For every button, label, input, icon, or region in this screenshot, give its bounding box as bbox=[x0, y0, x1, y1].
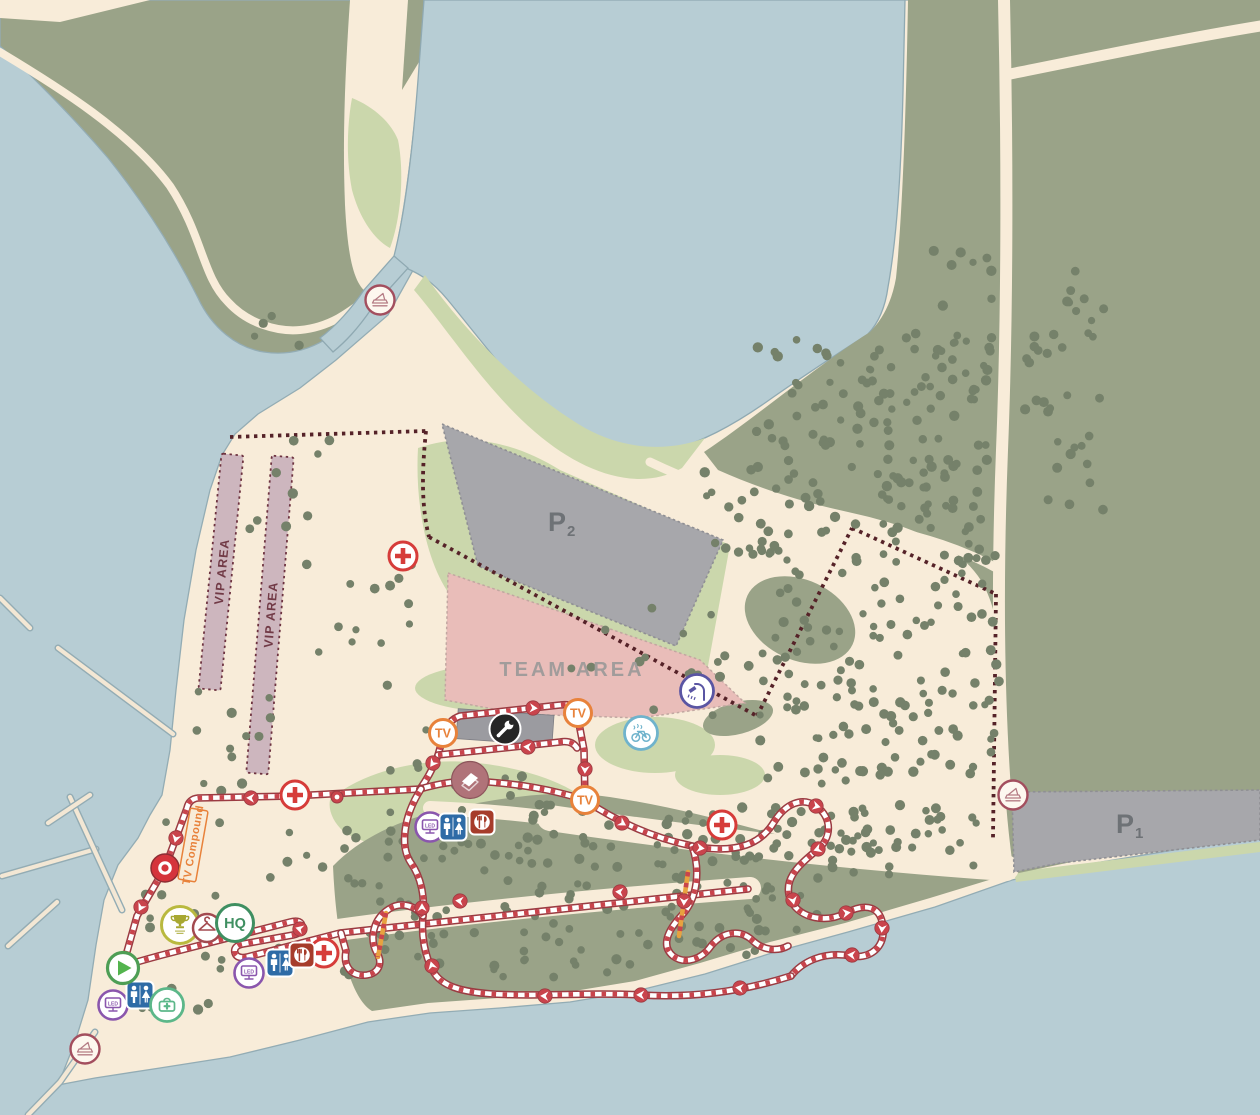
ferry-dock-icon bbox=[71, 1035, 100, 1064]
ferry-road-icon bbox=[999, 781, 1028, 810]
svg-text:LED: LED bbox=[244, 970, 254, 976]
catering-icon bbox=[470, 810, 495, 835]
bike-wash-icon bbox=[625, 717, 658, 750]
course-node-marker bbox=[331, 791, 343, 803]
flyover-bridge-icon bbox=[452, 762, 489, 799]
first-aid-icon bbox=[281, 781, 309, 809]
course-direction-arrow bbox=[676, 893, 691, 908]
led-screen-icon: LED bbox=[99, 991, 128, 1020]
first-aid-post-icon bbox=[151, 989, 184, 1022]
course-direction-arrow bbox=[538, 989, 553, 1004]
course-direction-arrow bbox=[415, 901, 429, 915]
course-point-marker bbox=[151, 854, 179, 882]
ferry-crossing-icon bbox=[366, 286, 395, 315]
catering-icon bbox=[290, 943, 315, 968]
team-area-label: TEAM AREA bbox=[499, 659, 644, 681]
hq-icon: HQ bbox=[217, 905, 254, 942]
led-screen-icon: LED bbox=[235, 959, 264, 988]
pit-wrench-icon bbox=[490, 714, 521, 745]
map-canvas: TVTVTVLEDLEDLEDHQ P2 P1 TEAM AREA VIP AR… bbox=[0, 0, 1260, 1115]
svg-text:LED: LED bbox=[425, 824, 435, 830]
course-direction-arrow bbox=[578, 762, 593, 777]
tv-camera-icon: TV bbox=[565, 700, 592, 727]
course-direction-arrow bbox=[243, 790, 258, 805]
tv-camera-icon: TV bbox=[572, 787, 599, 814]
first-aid-icon bbox=[708, 811, 736, 839]
shower-icon bbox=[681, 675, 714, 708]
svg-text:HQ: HQ bbox=[224, 916, 246, 932]
first-aid-icon bbox=[389, 542, 417, 570]
svg-text:TV: TV bbox=[577, 794, 594, 808]
tv-camera-icon: TV bbox=[430, 720, 457, 747]
course-direction-arrow bbox=[634, 988, 649, 1003]
start-finish-icon bbox=[108, 953, 139, 984]
svg-text:TV: TV bbox=[570, 707, 587, 721]
venue-map[interactable]: TVTVTVLEDLEDLEDHQ P2 P1 TEAM AREA VIP AR… bbox=[0, 0, 1260, 1115]
svg-text:LED: LED bbox=[108, 1002, 118, 1008]
toilets-icon bbox=[440, 814, 467, 841]
svg-text:TV: TV bbox=[435, 727, 452, 741]
